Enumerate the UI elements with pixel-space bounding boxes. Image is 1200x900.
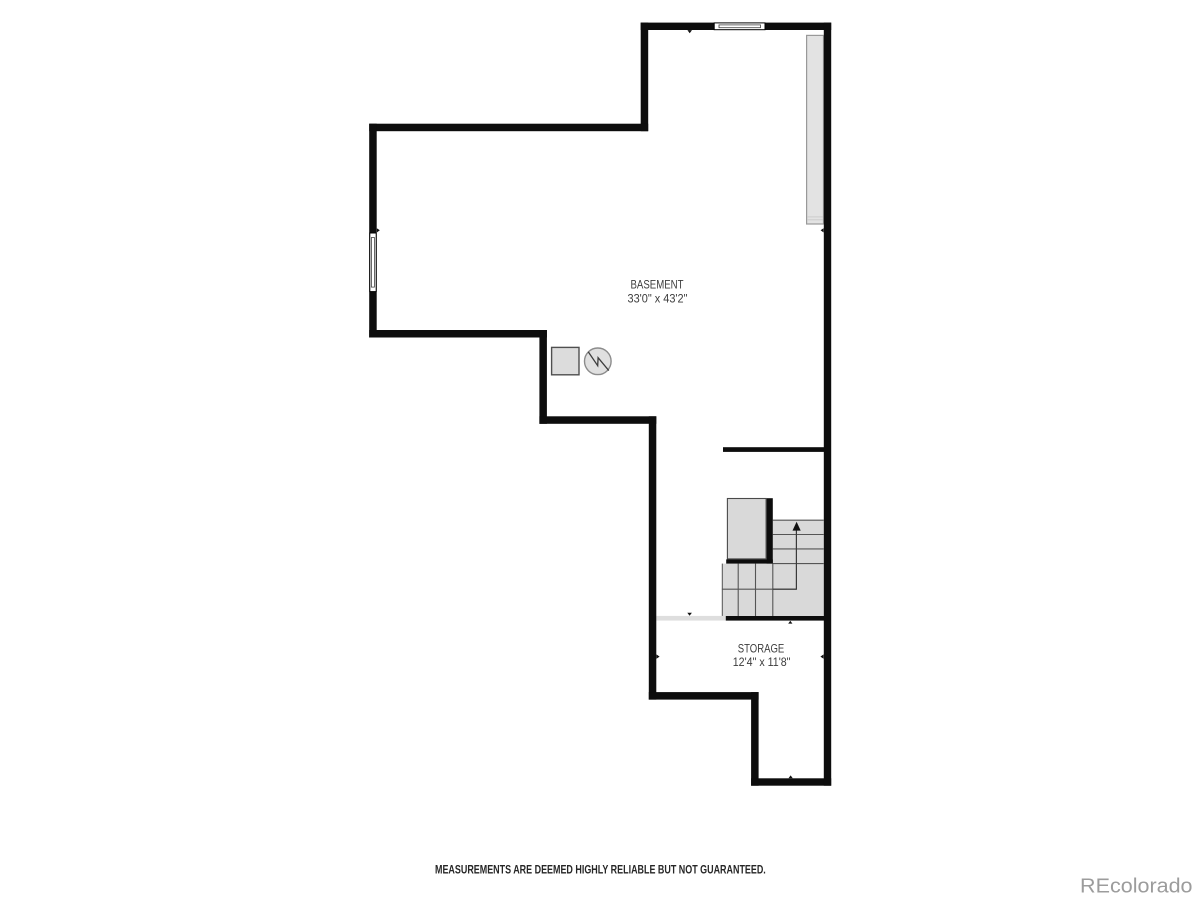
svg-text:REcolorado: REcolorado (1080, 875, 1193, 897)
svg-text:12'4" x 11'8": 12'4" x 11'8" (733, 656, 791, 669)
svg-text:BASEMENT: BASEMENT (631, 279, 684, 292)
svg-text:33'0" x 43'2": 33'0" x 43'2" (628, 293, 688, 306)
svg-text:MEASUREMENTS ARE DEEMED HIGHLY: MEASUREMENTS ARE DEEMED HIGHLY RELIABLE … (435, 863, 766, 876)
svg-text:STORAGE: STORAGE (738, 642, 785, 655)
